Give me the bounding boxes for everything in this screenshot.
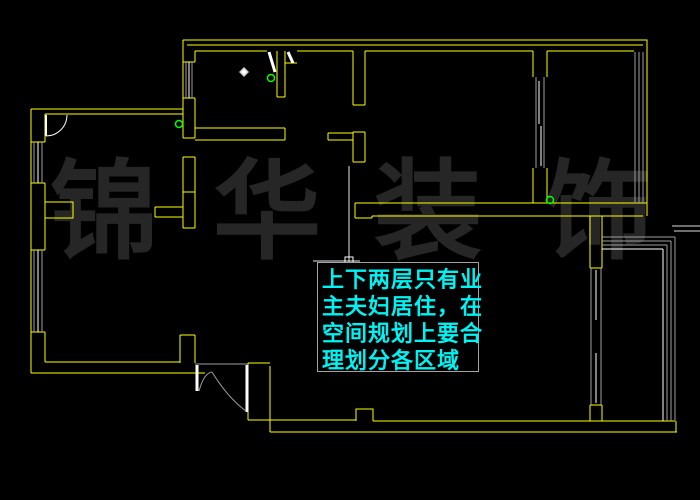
entry-double-door — [195, 364, 248, 412]
annotation-line: 主夫妇居住，在 — [322, 293, 478, 320]
cad-drawing-area[interactable]: 锦 华 装 饰 — [0, 0, 700, 500]
floor-plan-canvas[interactable] — [0, 0, 700, 500]
annotation-line: 上下两层只有业 — [322, 266, 478, 293]
lamp-dot-icon — [239, 67, 249, 77]
annotation-line: 理划分各区域 — [322, 347, 478, 374]
annotation-line: 空间规划上要合 — [322, 320, 478, 347]
interior-doors — [46, 52, 293, 136]
bay-window — [602, 226, 700, 421]
annotation-box[interactable]: 上下两层只有业 主夫妇居住，在 空间规划上要合 理划分各区域 — [317, 262, 479, 372]
